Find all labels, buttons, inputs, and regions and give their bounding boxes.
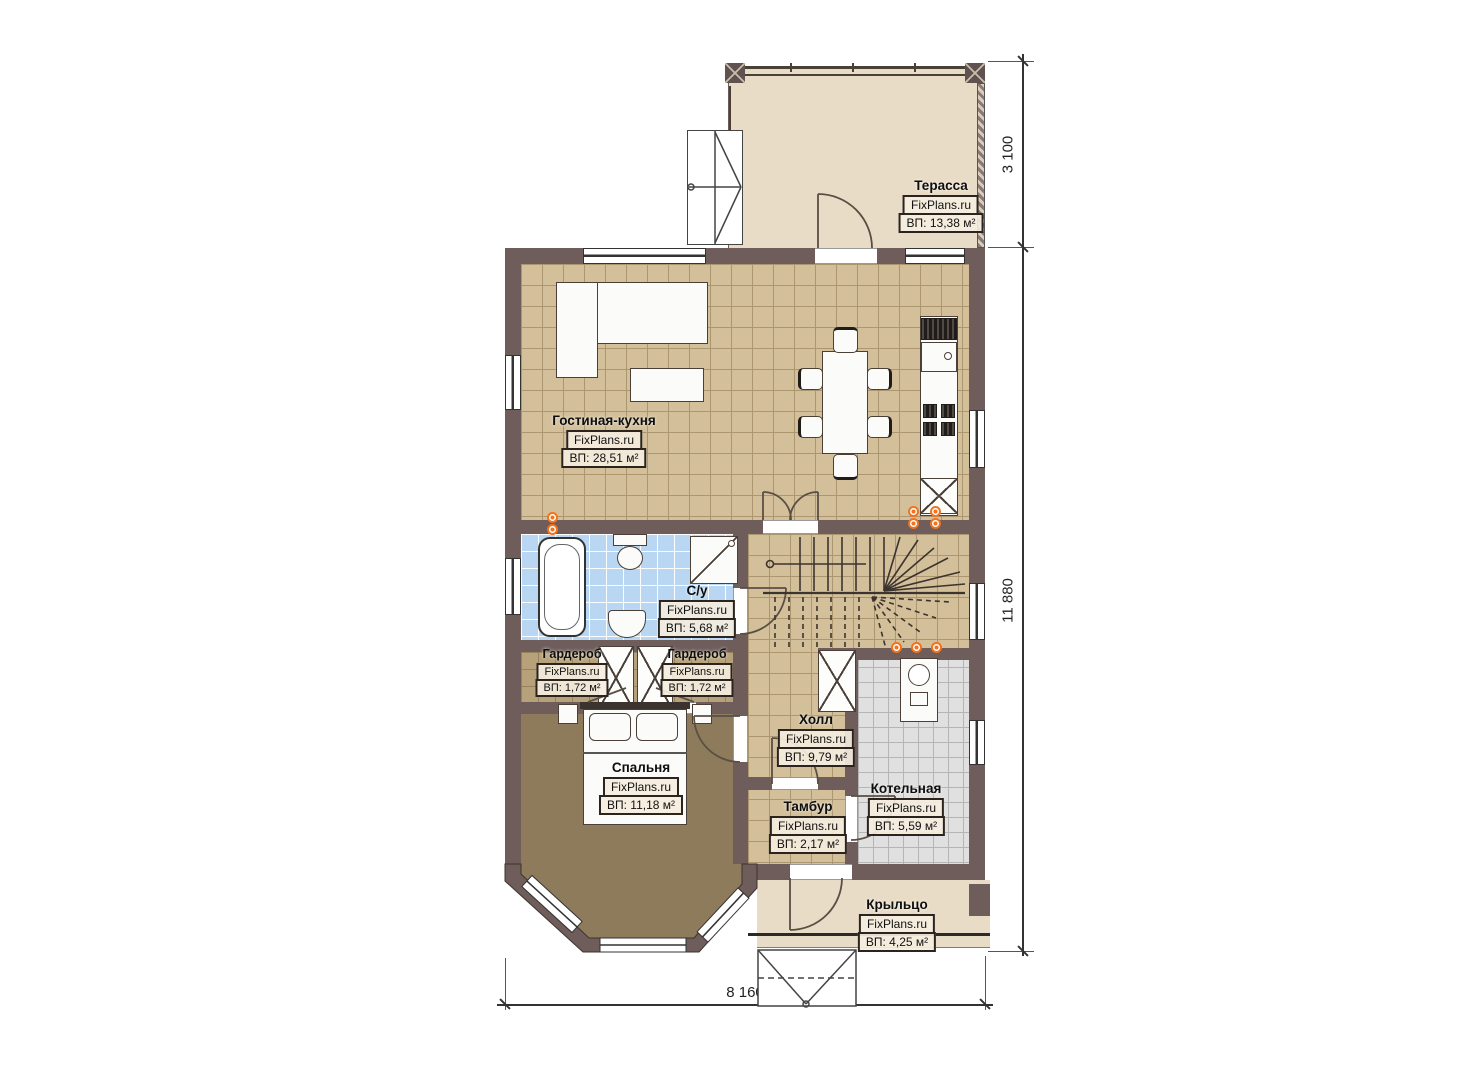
window-stairs-right — [969, 583, 985, 640]
terrace-ext-stair — [687, 130, 743, 245]
terrace-railing-top — [728, 66, 985, 69]
vestibule-door-opening — [772, 777, 818, 790]
watermark: FixPlans.ru — [566, 430, 642, 450]
watermark: FixPlans.ru — [659, 600, 735, 620]
radiator — [930, 506, 941, 529]
radiator — [908, 506, 919, 529]
dimension-line-bottom — [497, 1004, 993, 1006]
room-name: Тамбур — [784, 799, 833, 814]
room-area: ВП: 11,18 м² — [599, 795, 683, 815]
room-area: ВП: 5,68 м² — [658, 618, 736, 638]
dimension-house-depth: 11 880 — [1000, 566, 1017, 636]
window-kitchen-right — [969, 410, 985, 468]
room-name: Холл — [799, 712, 833, 727]
porch-post-right — [969, 884, 990, 916]
room-name: С/у — [686, 583, 707, 598]
chair — [867, 368, 892, 390]
terrace-post-right — [965, 63, 985, 83]
room-name: Терасса — [914, 178, 968, 193]
bedroom-door-opening — [733, 716, 748, 762]
watermark: FixPlans.ru — [770, 816, 846, 836]
washing-machine-door — [728, 540, 735, 547]
stove-burner — [923, 422, 937, 436]
boiler-equipment — [910, 692, 928, 706]
wall-bedroom-hall — [733, 762, 748, 864]
kitchen-faucet — [944, 352, 952, 360]
bathtub-inner — [544, 544, 580, 630]
nightstand — [558, 704, 578, 724]
fridge — [921, 318, 957, 340]
wall-hall-vestibule-1 — [748, 777, 772, 790]
chair — [867, 416, 892, 438]
boiler-tank — [908, 664, 930, 686]
room-area: ВП: 1,72 м² — [535, 679, 608, 697]
terrace-post-left — [725, 63, 745, 83]
pillow — [636, 713, 678, 741]
room-label-porch: Крыльцо FixPlans.ru ВП: 4,25 м² — [858, 897, 936, 952]
bay-window-pane-right — [697, 888, 749, 942]
room-area: ВП: 1,72 м² — [660, 679, 733, 697]
dimension-extension — [988, 951, 1034, 952]
room-label-bathroom: С/у FixPlans.ru ВП: 5,68 м² — [658, 583, 736, 638]
sofa-chaise — [556, 282, 598, 378]
chair — [833, 327, 858, 353]
room-label-terrace: Терасса FixPlans.ru ВП: 13,38 м² — [899, 178, 984, 233]
stove-burner — [941, 422, 955, 436]
bed-headboard — [580, 702, 690, 709]
terrace-door-opening — [815, 248, 877, 264]
chair — [798, 368, 823, 390]
watermark: FixPlans.ru — [868, 798, 944, 818]
room-label-vestibule: Тамбур FixPlans.ru ВП: 2,17 м² — [769, 799, 847, 854]
stove-burner — [923, 404, 937, 418]
room-area: ВП: 4,25 м² — [858, 932, 936, 952]
window-bathroom-left — [505, 558, 521, 615]
terrace-railing-tick — [914, 63, 916, 72]
wall-right — [969, 248, 985, 864]
nightstand — [692, 704, 712, 724]
entrance-door-opening — [790, 864, 852, 880]
vent-shaft — [818, 650, 856, 712]
watermark: FixPlans.ru — [903, 195, 979, 215]
dimension-extension — [988, 247, 1034, 248]
terrace-railing-tick — [790, 63, 792, 72]
watermark: FixPlans.ru — [778, 729, 854, 749]
terrace-railing-left — [729, 86, 731, 130]
wall-living-hall — [521, 520, 969, 534]
dimension-line-right — [1022, 54, 1024, 956]
boiler-burner — [891, 642, 902, 653]
wall-left — [505, 248, 521, 864]
chair — [798, 416, 823, 438]
floor-plan: Терасса FixPlans.ru ВП: 13,38 м² Гостина… — [0, 0, 1473, 1080]
room-area: ВП: 28,51 м² — [562, 448, 647, 468]
watermark: FixPlans.ru — [603, 777, 679, 797]
window-kitchen-top — [905, 248, 965, 264]
room-area: ВП: 5,59 м² — [867, 816, 945, 836]
toilet-bowl — [617, 546, 643, 570]
room-label-wardrobe-left: Гардероб FixPlans.ru ВП: 1,72 м² — [535, 647, 608, 697]
bay-window — [505, 864, 757, 952]
boiler-burner — [931, 642, 942, 653]
coffee-table — [630, 368, 704, 402]
dining-table — [822, 351, 868, 454]
window-living-top — [583, 248, 706, 264]
bay-window-pane-left — [522, 876, 582, 933]
room-area: ВП: 13,38 м² — [899, 213, 984, 233]
window-boiler-right — [969, 720, 985, 765]
room-name: Гардероб — [542, 647, 601, 661]
bay-window-pane-bottom — [600, 938, 686, 952]
room-name: Гардероб — [667, 647, 726, 661]
room-label-boiler-room: Котельная FixPlans.ru ВП: 5,59 м² — [867, 781, 945, 836]
room-name: Крыльцо — [866, 897, 927, 912]
room-label-wardrobe-right: Гардероб FixPlans.ru ВП: 1,72 м² — [660, 647, 733, 697]
dimension-house-width: 8 160 — [710, 984, 780, 1001]
room-label-living-kitchen: Гостиная-кухня FixPlans.ru ВП: 28,51 м² — [552, 413, 655, 468]
room-name: Спальня — [612, 760, 670, 775]
room-area: ВП: 9,79 м² — [777, 747, 855, 767]
room-label-bedroom: Спальня FixPlans.ru ВП: 11,18 м² — [599, 760, 683, 815]
wall-bottom — [748, 864, 985, 880]
terrace-railing-tick — [852, 63, 854, 72]
stairs-hall-floor — [748, 534, 969, 652]
wall-bath-hall-2 — [733, 634, 748, 716]
terrace-railing-top-inner — [728, 74, 985, 76]
dimension-terrace-depth: 3 100 — [1000, 125, 1017, 185]
chair — [833, 454, 858, 480]
radiator — [547, 512, 558, 535]
dimension-extension — [988, 61, 1034, 62]
wall-hall-vestibule-2 — [818, 777, 845, 790]
room-name: Котельная — [871, 781, 942, 796]
toilet-tank — [613, 534, 647, 546]
room-area: ВП: 2,17 м² — [769, 834, 847, 854]
living-double-door-opening — [763, 520, 818, 534]
stove-burner — [941, 404, 955, 418]
room-name: Гостиная-кухня — [552, 413, 655, 428]
boiler-burner — [911, 642, 922, 653]
window-living-left — [505, 355, 521, 410]
blanket-line — [583, 752, 687, 754]
room-label-hall: Холл FixPlans.ru ВП: 9,79 м² — [777, 712, 855, 767]
pillow — [589, 713, 631, 741]
watermark: FixPlans.ru — [859, 914, 935, 934]
